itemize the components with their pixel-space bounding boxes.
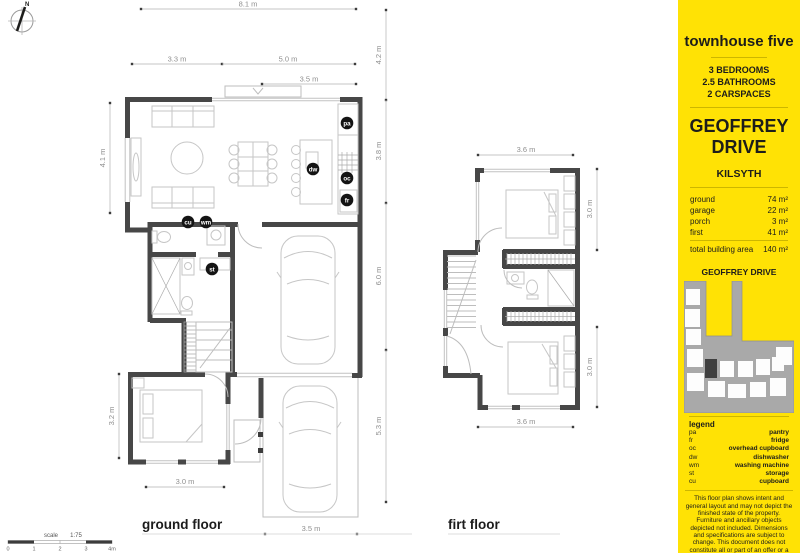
legend-term: dishwasher — [753, 454, 789, 462]
disclaimer-text: This floor plan shows intent and general… — [685, 490, 793, 553]
dim-label: 4.2 m — [374, 46, 383, 65]
legend-term: fridge — [771, 437, 789, 445]
toilet — [527, 280, 538, 294]
vanity — [182, 258, 194, 275]
post — [258, 448, 263, 453]
tag-fridge: fr — [345, 197, 350, 204]
dim-label: 3.8 m — [374, 142, 383, 161]
door-swing — [205, 374, 228, 397]
feature-list: 3 BEDROOMS 2.5 BATHROOMS 2 CARSPACES — [678, 64, 800, 100]
dim-label: 3.3 m — [168, 55, 187, 64]
scale-label: scale — [44, 533, 59, 539]
divider — [711, 57, 767, 58]
dim-label: 3.0 m — [176, 477, 195, 486]
post — [258, 432, 263, 437]
dim-label: 5.0 m — [279, 55, 298, 64]
area-row-porch: porch 3 m² — [690, 216, 788, 227]
legend-row: fr fridge — [689, 437, 789, 445]
dining-area — [229, 142, 277, 186]
scale-ratio: 1:75 — [70, 533, 82, 539]
area-label: ground — [690, 194, 715, 205]
area-label: total building area — [690, 244, 753, 255]
legend-abbr: pa — [689, 429, 696, 437]
area-row-total: total building area 140 m² — [690, 240, 788, 255]
legend-row: wm washing machine — [689, 462, 789, 470]
tag-overhead-cupboard: oc — [343, 175, 351, 182]
tag-pantry: pa — [343, 120, 351, 127]
feature-bedrooms: 3 BEDROOMS — [678, 64, 800, 76]
area-label: porch — [690, 216, 710, 227]
legend-row: oc overhead cupboard — [689, 445, 789, 453]
sofa — [152, 106, 214, 127]
first-bedroom-2 — [481, 325, 575, 394]
dim-label: 3.5 m — [300, 75, 319, 84]
legend-abbr: st — [689, 470, 694, 478]
suburb-name: KILSYTH — [678, 168, 800, 180]
tag-washing-machine: wm — [200, 219, 212, 226]
legend-abbr: dw — [689, 454, 697, 462]
tag-storage: st — [209, 266, 215, 273]
wardrobe — [505, 311, 575, 322]
first-floor-title: firt floor — [448, 517, 500, 532]
toilet — [158, 232, 171, 243]
compass-icon: N — [8, 2, 36, 35]
scale-tick: 2 — [58, 547, 61, 553]
dim-label: 3.6 m — [517, 145, 536, 154]
legend-row: st storage — [689, 470, 789, 478]
dim-label: 3.2 m — [107, 407, 116, 426]
highlighted-lot — [705, 359, 717, 378]
area-label: first — [690, 227, 703, 238]
ground-floor-title: ground floor — [142, 517, 223, 532]
legend-term: pantry — [769, 429, 789, 437]
dim-label: 8.1 m — [239, 0, 258, 9]
wardrobe — [505, 253, 575, 265]
door-swing — [238, 224, 262, 248]
area-row-ground: ground 74 m² — [690, 194, 788, 205]
area-value: 140 m² — [763, 244, 788, 255]
door-swing — [481, 325, 503, 347]
site-map-block: GEOFFREY DRIVE — [678, 267, 800, 413]
legend-term: storage — [766, 470, 789, 478]
dim-label: 3.0 m — [585, 200, 594, 219]
tag-dishwasher: dw — [309, 166, 318, 173]
area-value: 22 m² — [768, 205, 788, 216]
legend-title: legend — [689, 416, 789, 429]
area-label: garage — [690, 205, 715, 216]
site-map — [684, 281, 794, 413]
tag-cupboard: cu — [184, 219, 191, 226]
scale-tick: 0 — [6, 547, 9, 553]
toilet — [182, 297, 193, 310]
legend: legend pa pantry fr fridge oc overhead c… — [678, 416, 800, 486]
floor-plan-canvas: N — [0, 0, 678, 553]
area-row-first: first 41 m² — [690, 227, 788, 238]
divider — [690, 187, 788, 188]
first-stairs — [447, 256, 476, 374]
feature-bathrooms: 2.5 BATHROOMS — [678, 76, 800, 88]
ground-bedroom — [132, 374, 228, 442]
site-map-title: GEOFFREY DRIVE — [678, 267, 800, 277]
legend-row: dw dishwasher — [689, 454, 789, 462]
sofa — [152, 187, 214, 208]
bedside-table — [132, 378, 144, 388]
driveway — [263, 377, 358, 517]
dim-label: 3.5 m — [302, 524, 321, 533]
rug — [171, 142, 203, 174]
scale-bar: scale 1:75 0 1 2 3 4m — [6, 533, 116, 553]
legend-abbr: oc — [689, 445, 696, 453]
entry-canopy — [225, 86, 301, 97]
legend-abbr: fr — [689, 437, 693, 445]
door-swing — [478, 228, 502, 252]
dim-label: 3.0 m — [585, 358, 594, 377]
area-value: 41 m² — [768, 227, 788, 238]
area-table: ground 74 m² garage 22 m² porch 3 m² fir… — [678, 194, 800, 255]
legend-abbr: wm — [689, 462, 699, 470]
legend-term: overhead cupboard — [729, 445, 789, 453]
living-room — [131, 106, 214, 208]
car-icon — [279, 386, 341, 512]
first-bedroom-1 — [478, 176, 575, 252]
first-floor-plan: 3.6 m 3.0 m 3.0 m 3.6 m firt floor — [443, 145, 598, 534]
property-title: townhouse five — [678, 33, 800, 50]
compass-north-label: N — [25, 2, 29, 8]
scale-tick: 4m — [108, 547, 116, 553]
legend-abbr: cu — [689, 478, 696, 486]
area-row-garage: garage 22 m² — [690, 205, 788, 216]
property-info-panel: townhouse five 3 BEDROOMS 2.5 BATHROOMS … — [678, 0, 800, 553]
vanity — [507, 272, 524, 284]
bed — [506, 190, 558, 238]
dim-label: 5.3 m — [374, 417, 383, 436]
dim-label: 4.1 m — [98, 149, 107, 168]
ground-floor-plan: pa dw oc fr cu wm st 8.1 m 3.3 m 5.0 m 3… — [98, 0, 412, 535]
entry-door-swing — [235, 418, 261, 444]
car-icon — [277, 236, 339, 364]
stairs — [184, 322, 232, 372]
legend-term: cupboard — [759, 478, 789, 486]
dim-label: 3.6 m — [517, 417, 536, 426]
scale-tick: 1 — [32, 547, 35, 553]
divider — [690, 107, 788, 108]
legend-term: washing machine — [735, 462, 789, 470]
legend-row: cu cupboard — [689, 478, 789, 486]
washing-machine — [207, 226, 225, 245]
feature-carspaces: 2 CARSPACES — [678, 88, 800, 100]
first-bathroom — [504, 270, 574, 306]
ground-dimensions: 8.1 m 3.3 m 5.0 m 3.5 m 4.2 m 3.8 m 6.0 … — [98, 0, 387, 535]
area-value: 74 m² — [768, 194, 788, 205]
legend-row: pa pantry — [689, 429, 789, 437]
area-value: 3 m² — [772, 216, 788, 227]
dim-label: 6.0 m — [374, 267, 383, 286]
street-name: GEOFFREY DRIVE — [678, 116, 800, 158]
scale-tick: 3 — [84, 547, 87, 553]
